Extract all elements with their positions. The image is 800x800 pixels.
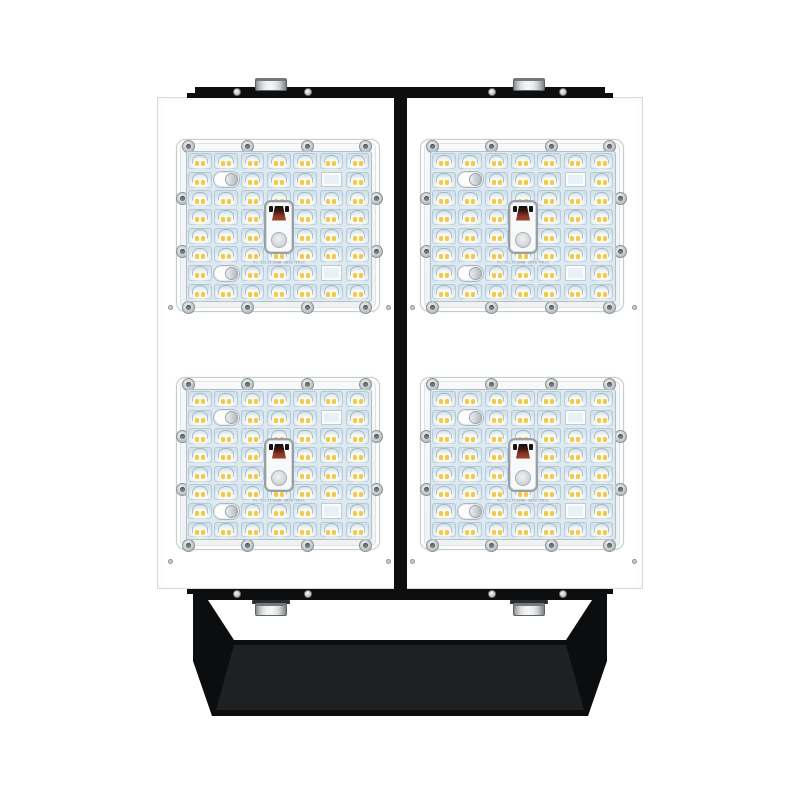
led-cell	[293, 447, 316, 463]
led-cell	[485, 410, 508, 426]
led-cell	[188, 265, 211, 281]
led-cell	[320, 391, 343, 407]
led-cell	[432, 410, 455, 426]
led-cell	[485, 172, 508, 188]
module-screw	[301, 539, 314, 552]
led-cell	[346, 284, 369, 300]
led-cell	[564, 391, 587, 407]
led-cell	[590, 209, 613, 225]
led-cell	[485, 522, 508, 538]
led-cell	[537, 209, 560, 225]
led-cell	[346, 484, 369, 500]
body-rivet-dot	[632, 305, 637, 310]
module-label: PL-12Lx110WW-3030-5R1X	[482, 499, 565, 503]
led-cell	[590, 522, 613, 538]
module-label: PL-12Lx110WW-3030-5R1X	[482, 261, 565, 265]
led-cell	[564, 466, 587, 482]
led-cell	[590, 265, 613, 281]
led-cell	[214, 246, 237, 262]
mount-bolt-bottom-right	[513, 603, 545, 616]
led-cell	[267, 503, 290, 519]
module-screw	[545, 301, 558, 314]
wiring-connector	[266, 202, 292, 252]
led-cell	[590, 447, 613, 463]
led-cell	[537, 447, 560, 463]
led-cell	[293, 228, 316, 244]
blank-lens-window	[566, 504, 584, 518]
led-cell	[458, 466, 481, 482]
led-floodlight-photo: PL-12Lx110WW-3030-5R1X PL-12Lx110WW-3030…	[0, 0, 800, 800]
led-cell	[590, 246, 613, 262]
module-label: PL-12Lx110WW-3030-5R1X	[238, 499, 321, 503]
led-cell	[188, 246, 211, 262]
mount-bolt-top-right	[513, 78, 545, 91]
module-screw	[603, 539, 616, 552]
module-screw	[359, 301, 372, 314]
led-cell	[346, 447, 369, 463]
led-cell	[590, 172, 613, 188]
led-cell	[458, 209, 481, 225]
led-cell	[188, 153, 211, 169]
led-cell	[564, 209, 587, 225]
led-cell	[346, 265, 369, 281]
led-cell	[346, 503, 369, 519]
rivet	[304, 590, 312, 598]
blank-lens-window	[322, 504, 340, 518]
led-cell	[346, 428, 369, 444]
led-cell	[346, 522, 369, 538]
module-screw	[426, 301, 439, 314]
led-cell	[485, 265, 508, 281]
led-cell	[241, 410, 264, 426]
body-rivet-dot	[386, 559, 391, 564]
led-cell	[241, 391, 264, 407]
led-cell	[214, 447, 237, 463]
led-cell	[564, 284, 587, 300]
connector-wire	[516, 444, 530, 459]
led-cell	[590, 391, 613, 407]
led-cell	[511, 153, 534, 169]
led-cell	[432, 284, 455, 300]
led-cell	[511, 391, 534, 407]
led-cell	[432, 153, 455, 169]
connector-hole	[515, 232, 531, 248]
led-cell	[346, 209, 369, 225]
light-sensor	[458, 504, 482, 519]
bottom-mount-rail	[195, 589, 605, 600]
led-module-bottom-left: PL-12Lx110WW-3030-5R1X	[176, 377, 380, 550]
led-cell	[485, 391, 508, 407]
led-cell	[537, 410, 560, 426]
led-cell	[564, 190, 587, 206]
led-cell	[537, 522, 560, 538]
led-cell	[320, 209, 343, 225]
led-cell	[537, 265, 560, 281]
light-sensor	[458, 266, 482, 281]
led-cell	[432, 228, 455, 244]
led-cell	[267, 172, 290, 188]
led-cell	[432, 503, 455, 519]
led-cell	[564, 246, 587, 262]
led-cell	[458, 284, 481, 300]
led-cell	[241, 447, 264, 463]
led-cell	[590, 410, 613, 426]
led-cell	[537, 428, 560, 444]
module-screw	[182, 301, 195, 314]
led-cell	[432, 246, 455, 262]
connector-pin	[529, 444, 533, 450]
led-cell	[432, 172, 455, 188]
rivet	[233, 88, 241, 96]
led-cell	[458, 447, 481, 463]
led-cell	[511, 410, 534, 426]
led-cell	[241, 466, 264, 482]
led-cell	[214, 391, 237, 407]
blank-lens-window	[322, 173, 340, 187]
led-cell	[432, 190, 455, 206]
led-cell	[188, 190, 211, 206]
led-cell	[241, 172, 264, 188]
led-cell	[458, 428, 481, 444]
led-cell	[241, 284, 264, 300]
led-cell	[320, 466, 343, 482]
led-cell	[293, 428, 316, 444]
connector-pin	[269, 206, 273, 212]
led-cell	[432, 209, 455, 225]
mount-bolt-bottom-left	[255, 603, 287, 616]
led-cell	[293, 410, 316, 426]
led-cell	[432, 265, 455, 281]
led-cell	[590, 466, 613, 482]
led-cell	[485, 466, 508, 482]
led-cell	[537, 503, 560, 519]
led-cell	[320, 284, 343, 300]
led-cell	[537, 228, 560, 244]
led-cell	[564, 228, 587, 244]
led-cell	[241, 228, 264, 244]
rivet	[304, 88, 312, 96]
led-cell	[293, 265, 316, 281]
led-cell	[214, 190, 237, 206]
led-cell	[241, 209, 264, 225]
led-cell	[188, 172, 211, 188]
connector-hole	[515, 470, 531, 486]
wiring-connector	[510, 202, 536, 252]
led-cell	[188, 209, 211, 225]
led-cell	[214, 228, 237, 244]
connector-hole	[271, 232, 287, 248]
led-cell	[485, 190, 508, 206]
led-cell	[432, 466, 455, 482]
led-cell	[293, 190, 316, 206]
led-cell	[214, 522, 237, 538]
connector-pin	[513, 206, 517, 212]
led-cell	[590, 284, 613, 300]
bottom-rail-end-left	[187, 589, 196, 594]
led-cell	[188, 447, 211, 463]
rivet	[559, 590, 567, 598]
led-module-bottom-right: PL-12Lx110WW-3030-5R1X	[420, 377, 624, 550]
led-cell	[346, 153, 369, 169]
led-cell	[188, 391, 211, 407]
led-cell	[293, 391, 316, 407]
module-screw	[241, 301, 254, 314]
led-cell	[241, 190, 264, 206]
led-cell	[293, 284, 316, 300]
led-cell	[241, 265, 264, 281]
led-cell	[320, 428, 343, 444]
module-screw	[182, 539, 195, 552]
led-cell	[214, 284, 237, 300]
blank-lens-window	[322, 411, 340, 425]
led-cell	[346, 190, 369, 206]
led-cell	[485, 228, 508, 244]
led-cell	[293, 522, 316, 538]
led-cell	[293, 209, 316, 225]
led-cell	[537, 391, 560, 407]
led-cell	[346, 410, 369, 426]
module-screw	[359, 539, 372, 552]
led-cell	[432, 522, 455, 538]
top-rail-end-right	[604, 93, 613, 98]
wiring-connector	[266, 440, 292, 490]
led-cell	[320, 447, 343, 463]
led-cell	[537, 153, 560, 169]
led-cell	[267, 391, 290, 407]
led-cell	[267, 410, 290, 426]
led-cell	[537, 172, 560, 188]
led-cell	[188, 228, 211, 244]
led-cell	[214, 209, 237, 225]
led-cell	[458, 153, 481, 169]
led-cell	[293, 466, 316, 482]
light-sensor	[214, 410, 238, 425]
led-cell	[293, 503, 316, 519]
led-cell	[511, 265, 534, 281]
led-cell	[458, 190, 481, 206]
rivet	[488, 590, 496, 598]
led-cell	[293, 172, 316, 188]
blank-lens-window	[566, 411, 584, 425]
led-cell	[320, 228, 343, 244]
connector-pin	[285, 444, 289, 450]
body-rivet-dot	[632, 559, 637, 564]
led-cell	[511, 522, 534, 538]
led-cell	[267, 284, 290, 300]
connector-pin	[513, 444, 517, 450]
led-cell	[485, 447, 508, 463]
led-cell	[267, 153, 290, 169]
body-rivet-dot	[410, 305, 415, 310]
led-cell	[432, 428, 455, 444]
led-module-top-right: PL-12Lx110WW-3030-5R1X	[420, 139, 624, 312]
blank-lens-window	[322, 266, 340, 280]
led-cell	[564, 153, 587, 169]
top-rail-end-left	[187, 93, 196, 98]
wiring-connector	[510, 440, 536, 490]
led-cell	[346, 246, 369, 262]
led-cell	[214, 466, 237, 482]
led-cell	[511, 284, 534, 300]
rivet	[233, 590, 241, 598]
body-rivet-dot	[168, 559, 173, 564]
module-screw	[241, 539, 254, 552]
led-cell	[320, 153, 343, 169]
module-screw	[426, 539, 439, 552]
body-rivet-dot	[410, 559, 415, 564]
body-rivet-dot	[386, 305, 391, 310]
led-cell	[346, 228, 369, 244]
led-cell	[458, 484, 481, 500]
led-cell	[485, 153, 508, 169]
led-cell	[432, 447, 455, 463]
module-screw	[545, 539, 558, 552]
led-cell	[485, 503, 508, 519]
led-cell	[346, 172, 369, 188]
led-cell	[267, 265, 290, 281]
led-cell	[590, 153, 613, 169]
connector-pin	[285, 206, 289, 212]
led-cell	[214, 428, 237, 444]
led-cell	[458, 522, 481, 538]
lens-plate: PL-12Lx110WW-3030-5R1X	[186, 151, 372, 302]
led-cell	[320, 190, 343, 206]
led-cell	[241, 153, 264, 169]
light-sensor	[458, 410, 482, 425]
light-sensor	[214, 266, 238, 281]
led-cell	[485, 284, 508, 300]
blank-lens-window	[566, 173, 584, 187]
led-cell	[188, 522, 211, 538]
led-cell	[564, 484, 587, 500]
light-sensor	[214, 172, 238, 187]
led-cell	[188, 428, 211, 444]
led-cell	[320, 246, 343, 262]
led-cell	[564, 428, 587, 444]
lens-plate: PL-12Lx110WW-3030-5R1X	[186, 389, 372, 540]
blank-lens-window	[566, 266, 584, 280]
led-cell	[537, 466, 560, 482]
lens-plate: PL-12Lx110WW-3030-5R1X	[430, 151, 616, 302]
rivet	[488, 88, 496, 96]
led-cell	[188, 484, 211, 500]
module-screw	[485, 301, 498, 314]
led-cell	[590, 228, 613, 244]
led-cell	[320, 522, 343, 538]
light-sensor	[458, 172, 482, 187]
led-cell	[485, 428, 508, 444]
led-cell	[214, 153, 237, 169]
led-cell	[590, 503, 613, 519]
led-cell	[214, 484, 237, 500]
led-cell	[241, 503, 264, 519]
led-cell	[241, 522, 264, 538]
connector-pin	[529, 206, 533, 212]
led-cell	[188, 503, 211, 519]
led-cell	[537, 284, 560, 300]
rivet	[559, 88, 567, 96]
led-cell	[188, 466, 211, 482]
led-cell	[346, 391, 369, 407]
center-divider-bar	[394, 97, 407, 589]
led-cell	[293, 153, 316, 169]
module-screw	[603, 301, 616, 314]
led-cell	[320, 484, 343, 500]
connector-pin	[269, 444, 273, 450]
bracket-inner-face	[216, 645, 584, 710]
led-cell	[511, 503, 534, 519]
bottom-rail-end-right	[604, 589, 613, 594]
led-cell	[511, 172, 534, 188]
mount-bolt-top-left	[255, 78, 287, 91]
led-module-top-left: PL-12Lx110WW-3030-5R1X	[176, 139, 380, 312]
led-cell	[590, 428, 613, 444]
module-screw	[485, 539, 498, 552]
led-cell	[537, 190, 560, 206]
led-cell	[590, 484, 613, 500]
led-cell	[564, 447, 587, 463]
connector-wire	[272, 206, 286, 221]
connector-wire	[272, 444, 286, 459]
connector-hole	[271, 470, 287, 486]
led-cell	[458, 246, 481, 262]
light-sensor	[214, 504, 238, 519]
led-cell	[188, 410, 211, 426]
connector-wire	[516, 206, 530, 221]
led-cell	[241, 428, 264, 444]
led-cell	[346, 466, 369, 482]
module-label: PL-12Lx110WW-3030-5R1X	[238, 261, 321, 265]
led-cell	[590, 190, 613, 206]
led-cell	[188, 284, 211, 300]
led-cell	[564, 522, 587, 538]
led-cell	[267, 522, 290, 538]
led-cell	[485, 209, 508, 225]
body-rivet-dot	[168, 305, 173, 310]
led-cell	[432, 484, 455, 500]
led-cell	[432, 391, 455, 407]
led-cell	[458, 391, 481, 407]
led-cell	[458, 228, 481, 244]
lens-plate: PL-12Lx110WW-3030-5R1X	[430, 389, 616, 540]
module-screw	[301, 301, 314, 314]
